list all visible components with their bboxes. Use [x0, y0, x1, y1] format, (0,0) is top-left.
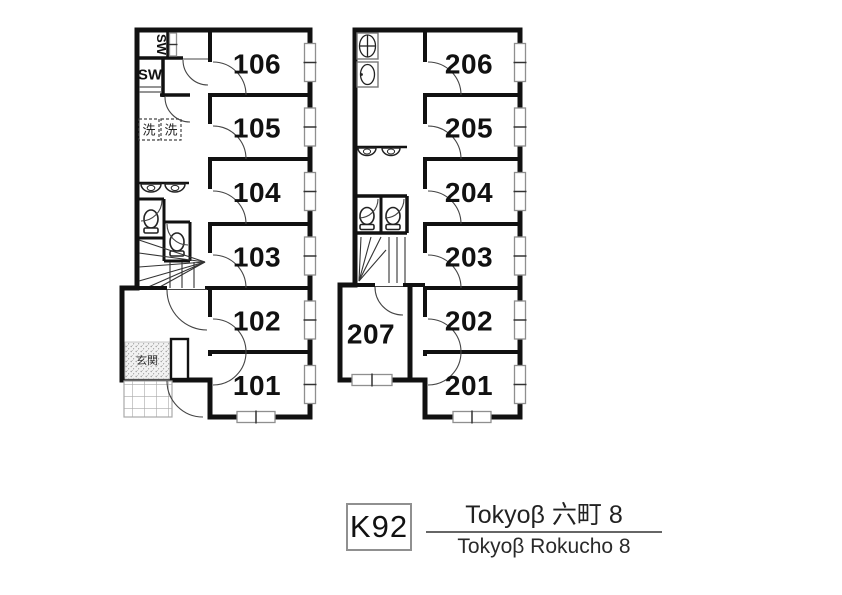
closet-label-vertical: SW	[154, 34, 169, 56]
toilet-icon	[360, 208, 374, 230]
entrance-label: 玄関	[136, 353, 158, 367]
room-number-207: 207	[347, 319, 395, 350]
room-number-206: 206	[445, 49, 493, 80]
floor-plan-2: 206 205 204 203 202 201 207	[340, 30, 527, 424]
room-number-105: 105	[233, 113, 281, 144]
floor-plan-1: 洗 洗	[122, 30, 317, 424]
room-number-204: 204	[445, 177, 493, 208]
floor-plans-drawing: 洗 洗	[0, 0, 842, 478]
room-number-205: 205	[445, 113, 493, 144]
room-number-203: 203	[445, 242, 493, 273]
shoe-cabinet	[171, 339, 188, 379]
plan-code: K92	[350, 509, 408, 545]
building-title-romaji: Tokyoβ Rokucho 8	[426, 534, 662, 559]
room-number-202: 202	[445, 306, 493, 337]
building-title-japanese: Tokyoβ 六町 8	[426, 501, 662, 533]
room-number-101: 101	[233, 370, 281, 401]
room-number-102: 102	[233, 306, 281, 337]
room-number-104: 104	[233, 177, 281, 208]
room-number-103: 103	[233, 242, 281, 273]
toilet-icon	[386, 208, 400, 230]
plan-code-box: K92	[346, 503, 412, 551]
closet-label: SW	[138, 67, 163, 84]
laundry-label: 洗	[164, 123, 177, 138]
building-title: Tokyoβ 六町 8 Tokyoβ Rokucho 8	[426, 501, 662, 559]
toilet-icon	[144, 210, 158, 233]
floor-plan-page: 洗 洗	[0, 0, 842, 595]
room-number-201: 201	[445, 370, 493, 401]
laundry-label: 洗	[142, 123, 155, 138]
room-number-106: 106	[233, 49, 281, 80]
porch-tiles	[124, 381, 172, 417]
